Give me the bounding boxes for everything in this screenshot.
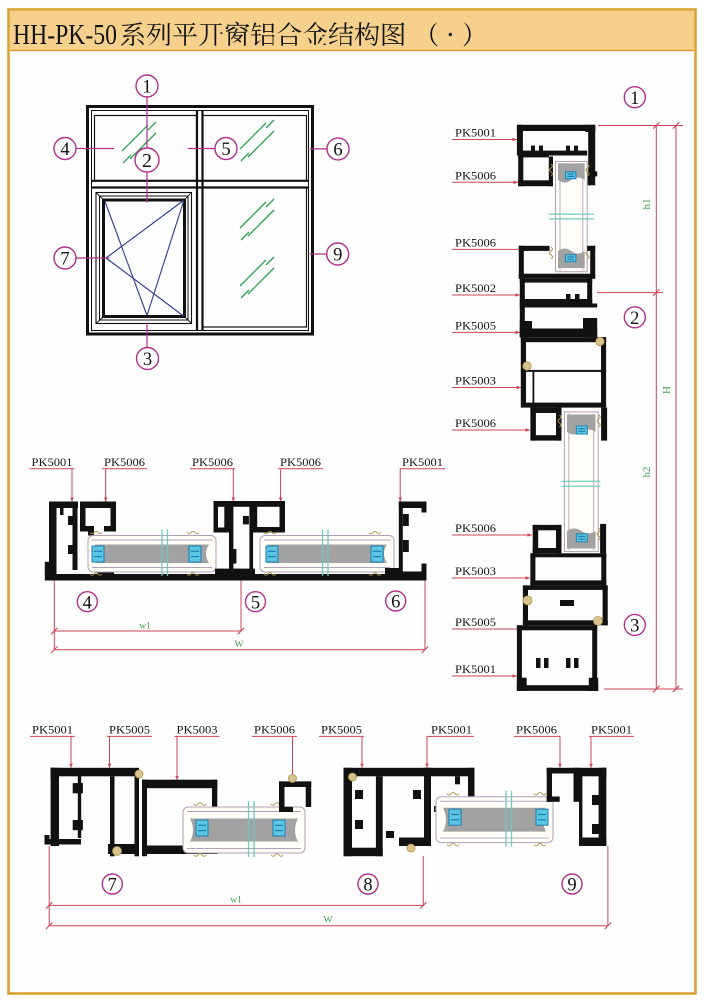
- svg-text:PK5001: PK5001: [455, 128, 496, 140]
- svg-text:H: H: [661, 386, 673, 394]
- svg-text:h1: h1: [641, 199, 653, 210]
- svg-text:2: 2: [142, 150, 152, 172]
- svg-text:w1: w1: [139, 622, 151, 632]
- svg-text:PK5006: PK5006: [192, 457, 233, 469]
- svg-text:1: 1: [142, 78, 151, 98]
- svg-text:9: 9: [333, 246, 342, 266]
- svg-text:PK5006: PK5006: [455, 170, 496, 182]
- svg-text:6: 6: [333, 141, 342, 161]
- svg-text:W: W: [235, 640, 244, 650]
- svg-text:PK5006: PK5006: [455, 418, 496, 430]
- svg-text:PK5006: PK5006: [455, 237, 496, 249]
- svg-text:PK5002: PK5002: [455, 283, 496, 295]
- svg-text:PK5005: PK5005: [455, 617, 496, 629]
- svg-text:PK5003: PK5003: [455, 376, 496, 388]
- svg-text:3: 3: [143, 350, 152, 370]
- svg-text:PK5006: PK5006: [455, 523, 496, 535]
- svg-text:7: 7: [108, 876, 117, 896]
- svg-text:w1: w1: [230, 896, 242, 906]
- svg-text:PK5006: PK5006: [516, 725, 557, 737]
- svg-text:6: 6: [391, 593, 400, 613]
- svg-text:PK5006: PK5006: [104, 457, 145, 469]
- svg-text:PK5005: PK5005: [109, 725, 150, 737]
- svg-text:PK5001: PK5001: [431, 725, 472, 737]
- svg-text:PK5003: PK5003: [455, 566, 496, 578]
- svg-text:4: 4: [83, 593, 92, 613]
- svg-text:PK5001: PK5001: [455, 664, 496, 676]
- svg-text:7: 7: [60, 250, 69, 270]
- svg-text:PK5001: PK5001: [32, 457, 73, 469]
- svg-text:PK5005: PK5005: [321, 725, 362, 737]
- svg-text:PK5005: PK5005: [455, 320, 496, 332]
- svg-text:2: 2: [630, 309, 639, 329]
- svg-text:4: 4: [60, 140, 69, 160]
- svg-text:PK5006: PK5006: [254, 725, 295, 737]
- svg-text:1: 1: [630, 89, 639, 109]
- svg-text:W: W: [324, 916, 333, 926]
- svg-text:9: 9: [567, 876, 576, 896]
- svg-text:8: 8: [363, 876, 372, 896]
- svg-text:PK5001: PK5001: [402, 457, 443, 469]
- svg-text:5: 5: [251, 593, 260, 613]
- svg-text:PK5001: PK5001: [32, 725, 73, 737]
- svg-text:h2: h2: [641, 467, 653, 478]
- svg-text:PK5003: PK5003: [177, 725, 218, 737]
- svg-text:PK5001: PK5001: [591, 725, 632, 737]
- svg-text:3: 3: [630, 617, 639, 637]
- svg-text:HH-PK-50: HH-PK-50: [13, 19, 117, 51]
- svg-text:5: 5: [221, 140, 230, 160]
- svg-text:PK5006: PK5006: [280, 457, 321, 469]
